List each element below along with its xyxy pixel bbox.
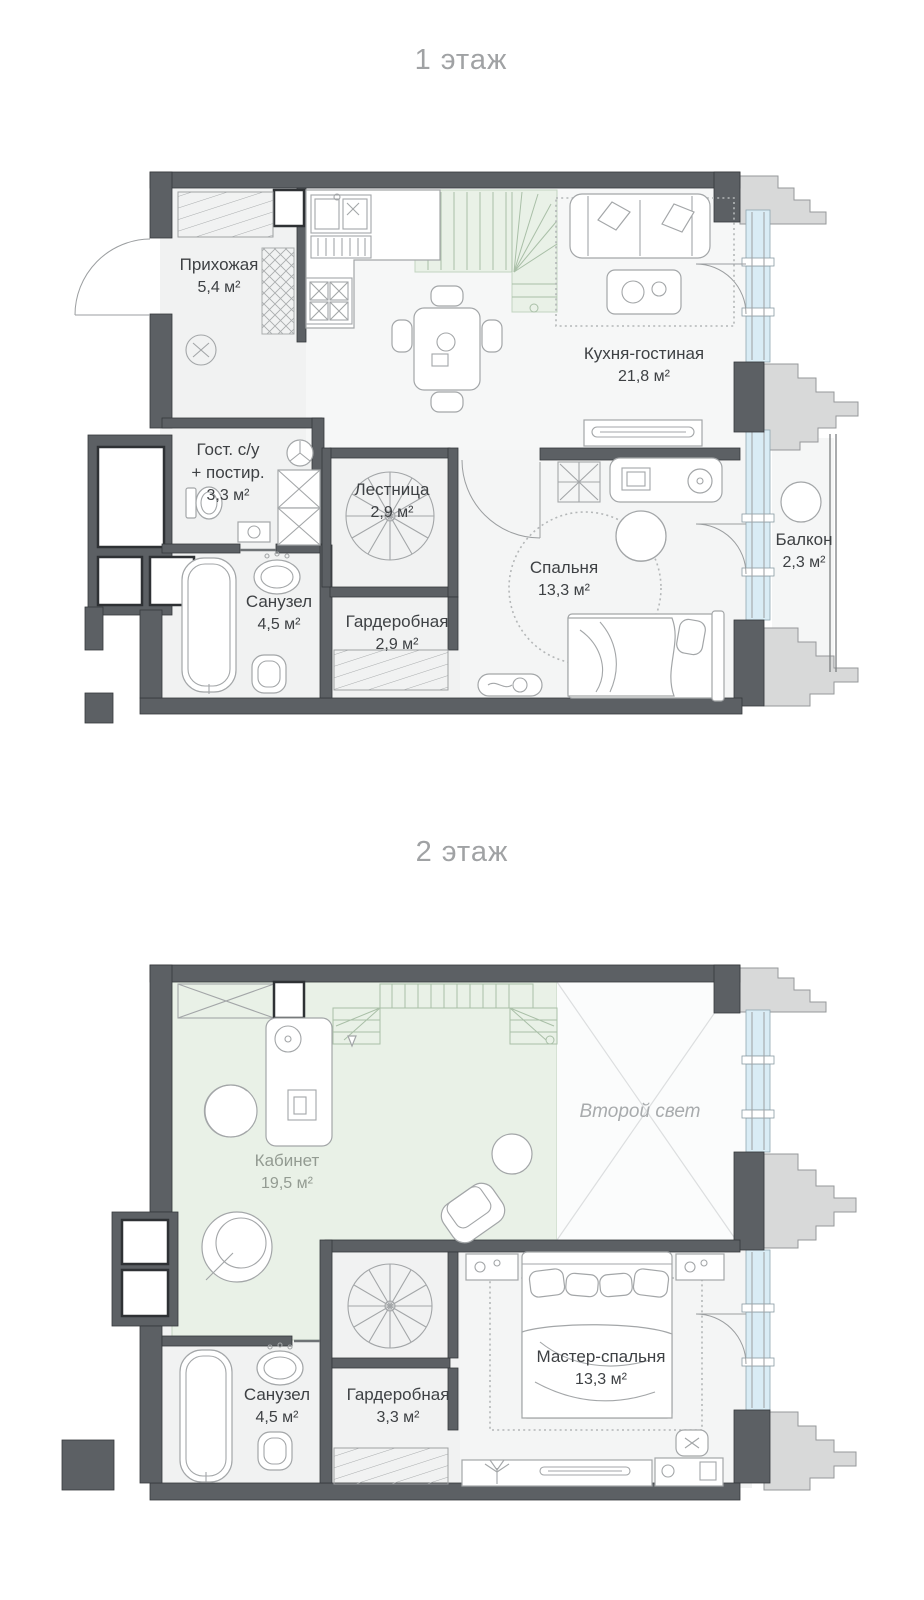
shaft-box [122,1220,168,1264]
room-label-kitchen-living: Кухня-гостиная21,8 м² [584,342,704,388]
x-stool [676,1430,708,1456]
sofa [570,194,710,258]
column-box [274,982,304,1018]
room-label-bedroom: Спальня13,3 м² [530,556,598,602]
office-chair [204,1085,257,1137]
bathtub2 [180,1350,232,1482]
room-label-balcony: Балкон2,3 м² [775,528,832,574]
room-label-bathroom: Санузел4,5 м² [246,590,312,636]
floorplan-page: 1 этаж [0,0,924,1600]
room-label-master-bedroom: Мастер-спальня13,3 м² [536,1345,665,1391]
spiral-stair2 [348,1264,432,1348]
tv-table [655,1458,723,1486]
wardrobe-rack [334,650,448,690]
room-label-stairs: Лестница2,9 м² [355,478,430,524]
nightstand-left [466,1254,518,1280]
wc-sink [238,522,270,542]
floor2-title: 2 этаж [416,836,509,869]
bedroom-desk [610,458,722,502]
room-label-office: Кабинет19,5 м² [255,1149,320,1195]
entry-mat [262,248,294,334]
bathtub [182,558,236,694]
tv-cabinet [584,420,702,446]
floor1-title: 1 этаж [415,44,508,77]
bed-single [568,611,724,701]
plant-box [558,462,600,502]
papasan-chair [202,1212,272,1282]
column-box [274,190,304,226]
dresser [462,1460,652,1486]
shaft-box [122,1270,168,1316]
side-table [492,1134,532,1174]
room-label-void: Второй свет [579,1100,700,1123]
room-label-wardrobe: Гардеробная2,9 м² [346,610,449,656]
room-label-guest-wc: Гост. с/у+ постир. 3,3 м² [191,438,264,507]
bench [478,674,542,696]
nightstand-right [676,1254,724,1280]
shaft-box [98,557,142,605]
tub-chair [616,511,666,561]
hall-wardrobe [178,192,273,237]
wardrobe2-rack [334,1448,448,1484]
bath-toilet [252,655,286,693]
room-label-wardrobe2: Гардеробная3,3 м² [347,1383,450,1429]
room-label-hallway: Прихожая5,4 м² [180,253,259,299]
office-desk [266,1018,332,1146]
floor2-plan [0,940,924,1520]
bath2-toilet [258,1432,292,1470]
bed-double [522,1252,672,1418]
balcony-table [781,482,821,522]
shaft-box [98,447,164,547]
room-label-bathroom2: Санузел4,5 м² [244,1383,310,1429]
floor1-plan [0,150,924,730]
entrance-door-swing [75,239,150,315]
coffee-table [607,270,681,314]
